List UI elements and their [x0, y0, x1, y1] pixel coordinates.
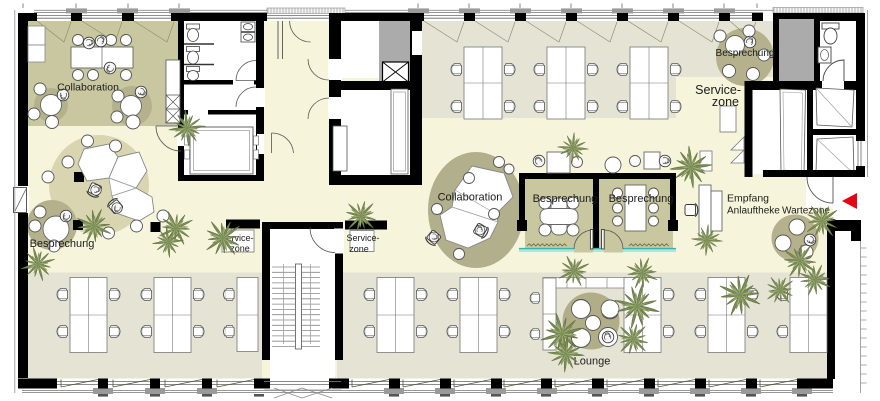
svg-text:Besprechung: Besprechung — [533, 193, 598, 205]
svg-text:Collaboration: Collaboration — [438, 192, 503, 204]
svg-text:zone: zone — [712, 95, 739, 109]
svg-text:Service-: Service- — [346, 233, 379, 243]
svg-text:zone: zone — [349, 244, 369, 254]
svg-text:Wartezone: Wartezone — [782, 206, 830, 217]
svg-text:Besprechung: Besprechung — [609, 193, 674, 205]
svg-text:Lounge: Lounge — [574, 356, 611, 368]
svg-text:Anlauftheke: Anlauftheke — [727, 206, 780, 217]
svg-text:Besprechung: Besprechung — [30, 238, 95, 250]
svg-text:Collaboration: Collaboration — [57, 82, 119, 94]
svg-text:Besprechung: Besprechung — [716, 48, 775, 59]
svg-text:Empfang: Empfang — [727, 193, 769, 205]
